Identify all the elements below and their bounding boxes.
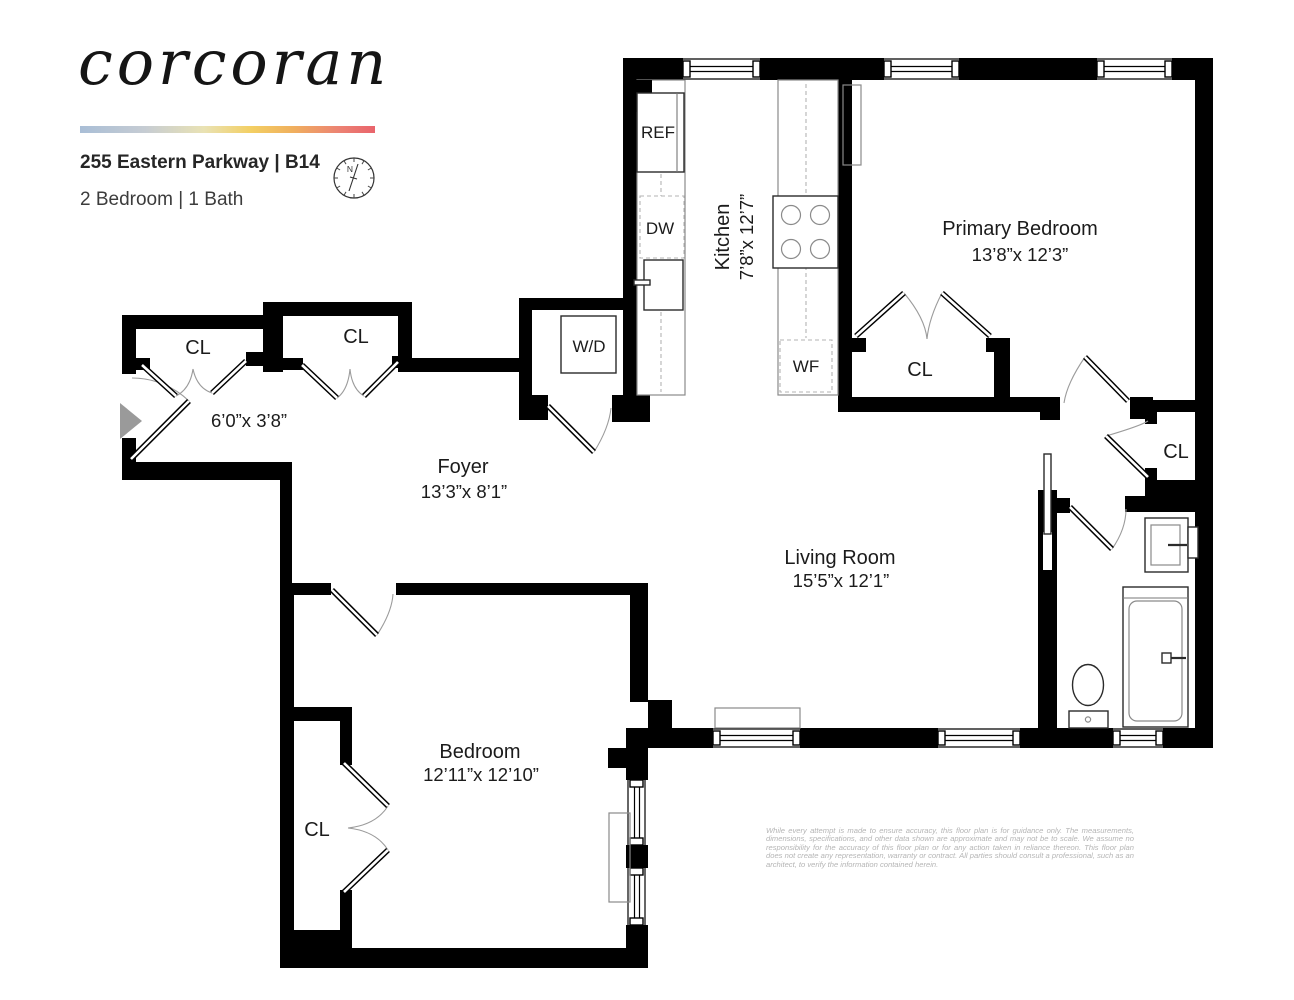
entry-arrow-icon — [120, 403, 142, 439]
stove — [773, 196, 838, 268]
entry-dims: 6’0”x 3’8” — [211, 410, 287, 431]
medicine-cabinet — [1188, 527, 1198, 558]
compass-north-label: N — [347, 164, 353, 174]
closet-label: CL — [304, 819, 330, 841]
closet-label: CL — [907, 359, 933, 381]
primary-bedroom-label: Primary Bedroom — [942, 218, 1098, 240]
disclaimer-text: While every attempt is made to ensure ac… — [766, 827, 1134, 869]
window-primary-1 — [884, 58, 959, 80]
window-bathroom — [1113, 728, 1163, 748]
window-living-2 — [938, 728, 1020, 748]
compass-icon: N — [334, 158, 374, 198]
kitchen-dims: 7’8”x 12’7” — [736, 194, 757, 280]
windows — [627, 58, 1172, 925]
window-primary-2 — [1097, 58, 1172, 80]
foyer-label: Foyer — [437, 456, 488, 478]
pocket-door — [1044, 454, 1051, 534]
foyer-dims: 13’3”x 8’1” — [421, 481, 507, 502]
wf-label: WF — [793, 357, 819, 376]
closet-label: CL — [1163, 441, 1189, 463]
bedroom-dims: 12’11”x 12’10” — [423, 764, 539, 785]
wd-label: W/D — [572, 337, 605, 356]
toilet — [1073, 665, 1104, 706]
window-living-1 — [713, 728, 800, 748]
living-room-dims: 15’5”x 12’1” — [793, 570, 890, 591]
dw-label: DW — [646, 219, 674, 238]
faucet-icon — [634, 280, 650, 285]
radiator — [715, 708, 800, 728]
bedroom-label: Bedroom — [439, 741, 520, 763]
primary-bedroom-dims: 13’8”x 12’3” — [972, 244, 1069, 265]
misc-fixtures — [120, 316, 800, 902]
ref-label: REF — [641, 123, 675, 142]
closet-label: CL — [185, 337, 211, 359]
living-room-label: Living Room — [784, 547, 895, 569]
kitchen-label: Kitchen — [712, 204, 734, 271]
closet-label: CL — [343, 326, 369, 348]
window-kitchen — [683, 58, 760, 80]
floor-plan-page: corcoran 255 Eastern Parkway | B14 2 Bed… — [0, 0, 1294, 1000]
